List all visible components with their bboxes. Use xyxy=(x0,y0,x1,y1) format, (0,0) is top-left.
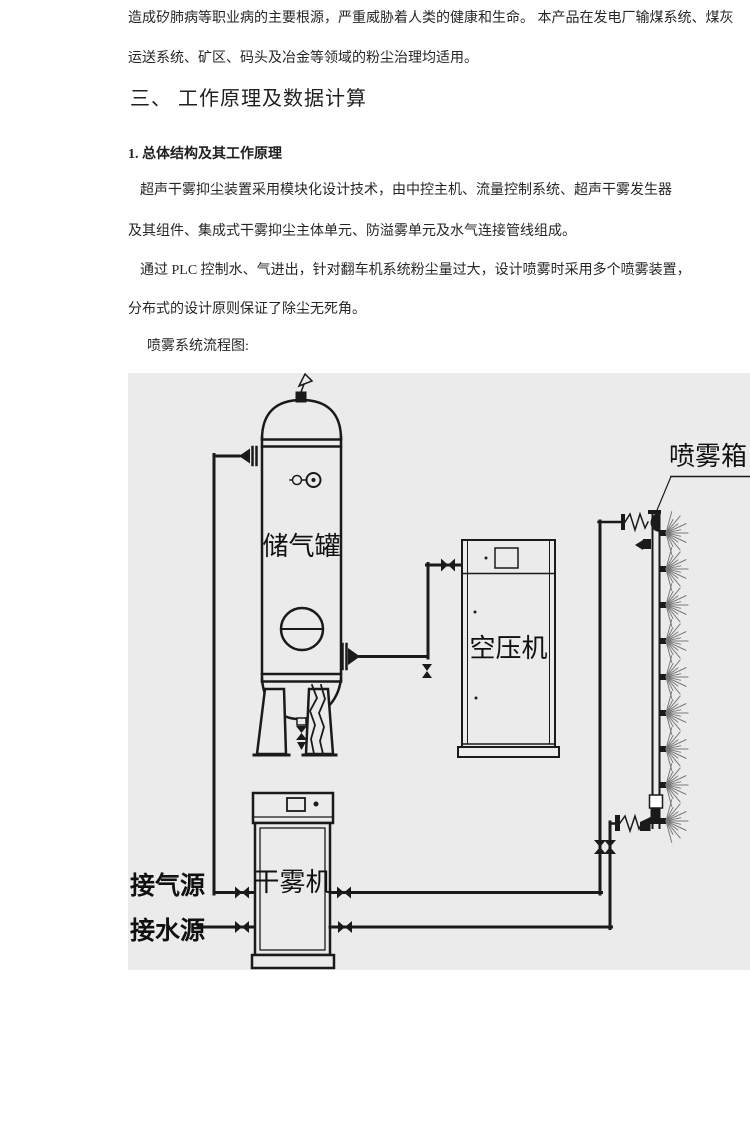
air-compressor: 空压机 xyxy=(458,540,559,757)
compressor-label: 空压机 xyxy=(469,634,547,663)
fog-machine-label: 干雾机 xyxy=(253,868,331,897)
gas-source-label: 接气源 xyxy=(130,871,205,900)
subsection-heading: 1. 总体结构及其工作原理 xyxy=(128,143,282,163)
compressor-display xyxy=(495,548,518,568)
water-source-label: 接水源 xyxy=(130,917,205,945)
paragraph1-line-1: 超声干雾抑尘装置采用模块化设计技术，由中控主机、流量控制系统、超声干雾发生器 xyxy=(140,179,672,199)
paragraph2-line-1: 通过 PLC 控制水、气进出，针对翻车机系统粉尘量过大，设计喷雾时采用多个喷雾装… xyxy=(140,259,691,279)
fog-machine-display xyxy=(287,798,305,811)
tank-label: 储气罐 xyxy=(262,532,340,561)
diagram-background xyxy=(128,373,750,970)
intro-line-2: 运送系统、矿区、码头及冶金等领域的粉尘治理均适用。 xyxy=(128,47,478,67)
document-page: 造成矽肺病等职业病的主要根源，严重威胁着人类的健康和生命。 本产品在发电厂输煤系… xyxy=(0,0,750,1128)
paragraph1-line-2: 及其组件、集成式干雾抑尘主体单元、防溢雾单元及水气连接管线组成。 xyxy=(128,220,576,240)
paragraph2-line-2: 分布式的设计原则保证了除尘无死角。 xyxy=(128,298,366,318)
tank-leg-right xyxy=(306,689,333,754)
spray-box-label: 喷雾箱 xyxy=(669,442,747,471)
dry-fog-machine: 干雾机 xyxy=(252,793,334,968)
spray-system-flow-diagram: 储气罐 xyxy=(128,373,750,970)
section-heading: 三、 工作原理及数据计算 xyxy=(130,82,367,111)
figure-caption: 喷雾系统流程图: xyxy=(147,335,249,355)
intro-line-1: 造成矽肺病等职业病的主要根源，严重威胁着人类的健康和生命。 本产品在发电厂输煤系… xyxy=(128,7,734,27)
